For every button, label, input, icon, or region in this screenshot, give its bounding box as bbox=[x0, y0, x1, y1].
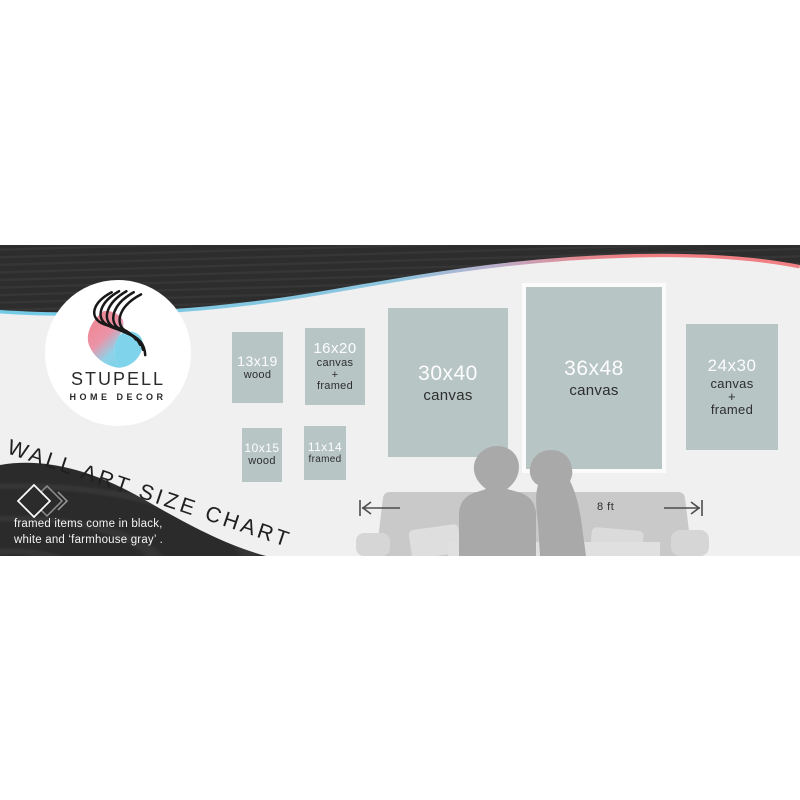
size-chart-banner: 13x19 wood 16x20 canvas + framed 30x40 c… bbox=[0, 245, 800, 556]
diamond-arrows-icon bbox=[16, 481, 70, 521]
brand-logo: STUPELL HOME DECOR bbox=[45, 280, 191, 426]
brand-name: STUPELL bbox=[45, 369, 191, 390]
brand-tagline: HOME DECOR bbox=[45, 392, 191, 402]
note-line-1: framed items come in black, bbox=[14, 516, 163, 532]
scale-label: 8 ft bbox=[597, 501, 614, 513]
framed-items-note: framed items come in black, white and ‘f… bbox=[14, 516, 163, 548]
brand-swirl-icon bbox=[65, 286, 171, 374]
note-line-2: white and ‘farmhouse gray’ . bbox=[14, 532, 163, 548]
couple-silhouette bbox=[459, 446, 586, 556]
